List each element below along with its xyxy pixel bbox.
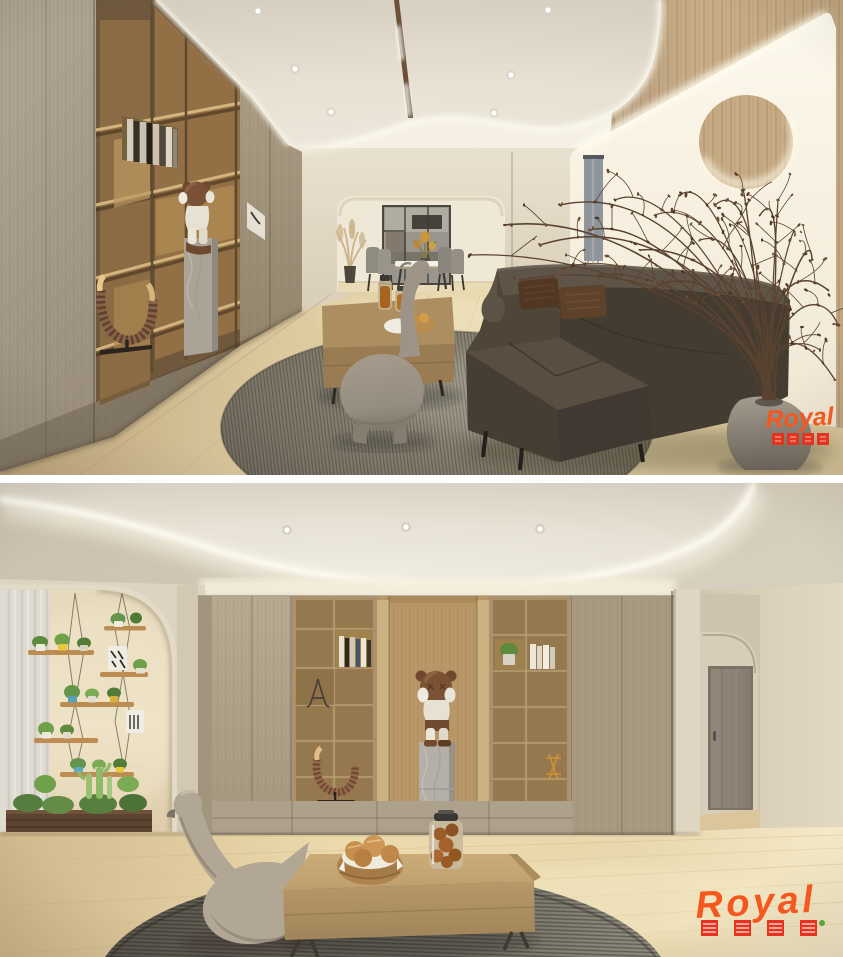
svg-text:Royal: Royal [765, 402, 836, 434]
svg-text:Royal: Royal [694, 879, 817, 927]
